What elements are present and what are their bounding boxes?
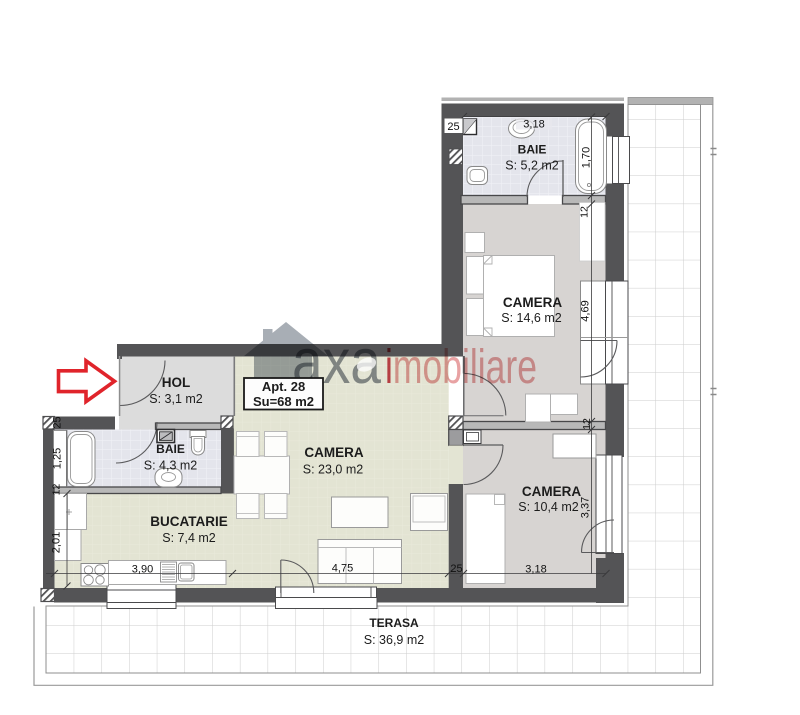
svg-text:CAMERA: CAMERA xyxy=(503,295,562,310)
svg-text:4,75: 4,75 xyxy=(332,563,353,575)
svg-text:Su=68 m2: Su=68 m2 xyxy=(253,394,314,409)
svg-text:25: 25 xyxy=(450,563,462,575)
svg-text:12: 12 xyxy=(581,418,593,430)
svg-text:3,18: 3,18 xyxy=(525,564,546,576)
svg-text:25: 25 xyxy=(52,416,64,428)
svg-text:S: 10,4 m2: S: 10,4 m2 xyxy=(518,500,578,514)
svg-text:1,25: 1,25 xyxy=(52,448,64,469)
svg-text:S: 7,4 m2: S: 7,4 m2 xyxy=(162,531,216,545)
svg-text:12: 12 xyxy=(51,484,63,496)
svg-text:imobiliare: imobiliare xyxy=(385,341,537,394)
svg-text:3,37: 3,37 xyxy=(580,497,592,518)
svg-text:2,01: 2,01 xyxy=(51,532,63,553)
svg-text:S: 3,1 m2: S: 3,1 m2 xyxy=(149,392,203,406)
svg-text:25: 25 xyxy=(447,121,459,133)
svg-text:Apt. 28: Apt. 28 xyxy=(262,379,305,394)
svg-text:12: 12 xyxy=(579,206,591,218)
svg-text:BAIE: BAIE xyxy=(518,143,547,157)
svg-text:S: 36,9 m2: S: 36,9 m2 xyxy=(364,633,424,647)
svg-text:S: 4,3 m2: S: 4,3 m2 xyxy=(144,459,198,473)
svg-text:S: 5,2 m2: S: 5,2 m2 xyxy=(505,159,559,173)
svg-text:1,70: 1,70 xyxy=(581,147,593,168)
svg-text:3,18: 3,18 xyxy=(523,119,544,131)
svg-text:HOL: HOL xyxy=(162,375,191,390)
svg-text:S: 14,6 m2: S: 14,6 m2 xyxy=(501,311,561,325)
svg-text:BAIE: BAIE xyxy=(156,442,185,456)
svg-text:4,69: 4,69 xyxy=(580,300,592,321)
svg-text:CAMERA: CAMERA xyxy=(304,445,363,460)
svg-text:CAMERA: CAMERA xyxy=(522,484,581,499)
svg-text:3,90: 3,90 xyxy=(132,564,153,576)
svg-text:S: 23,0 m2: S: 23,0 m2 xyxy=(303,463,363,477)
svg-text:TERASA: TERASA xyxy=(369,616,419,630)
svg-text:BUCATARIE: BUCATARIE xyxy=(150,514,228,529)
